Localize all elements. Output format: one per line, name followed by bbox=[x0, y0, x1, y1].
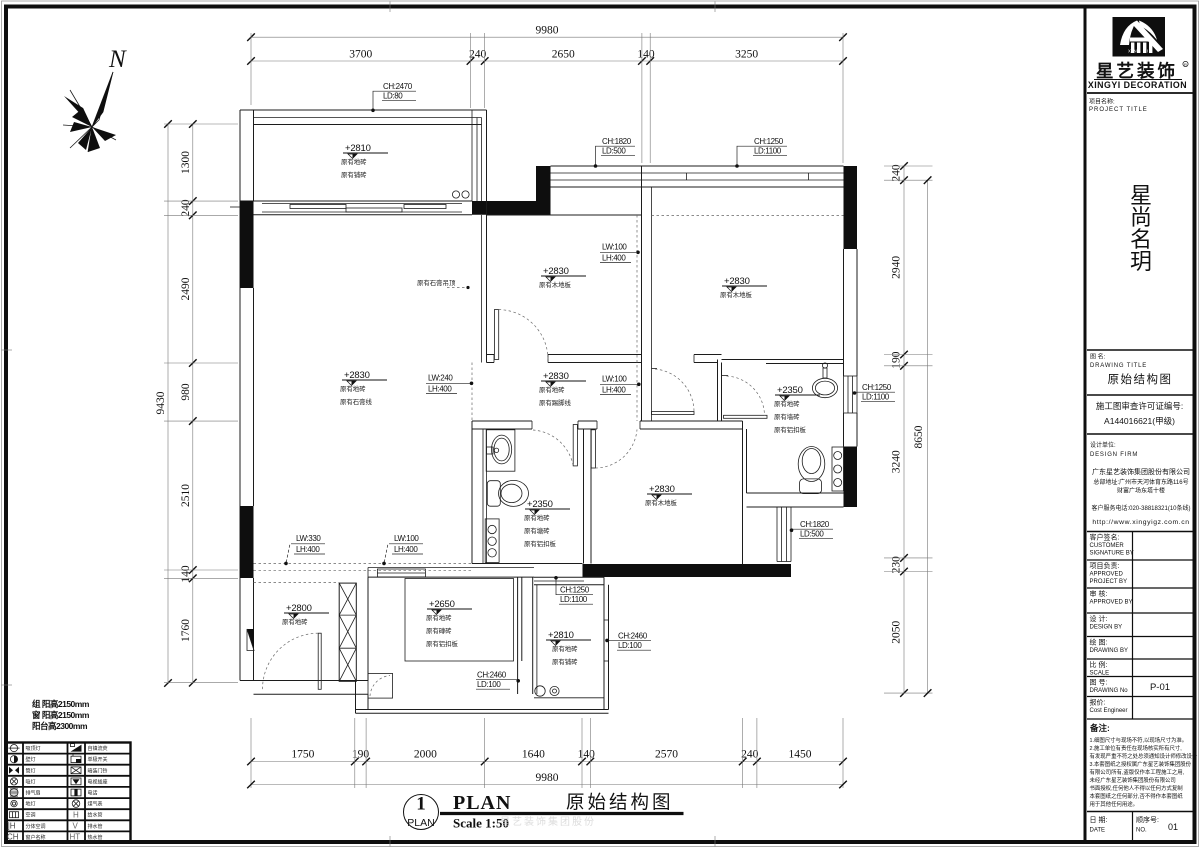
svg-text:原有地砖: 原有地砖 bbox=[552, 644, 578, 653]
svg-text:原有铺砖: 原有铺砖 bbox=[552, 657, 578, 666]
svg-text:原有磚砖: 原有磚砖 bbox=[426, 626, 452, 635]
svg-text:LH:400: LH:400 bbox=[296, 545, 320, 554]
svg-text:顺序号:: 顺序号: bbox=[1136, 815, 1159, 824]
svg-text:LD:100: LD:100 bbox=[477, 680, 501, 689]
svg-text:1640: 1640 bbox=[522, 749, 545, 761]
svg-text:给水管: 给水管 bbox=[88, 812, 103, 819]
svg-text:PROJECT TITLE: PROJECT TITLE bbox=[1089, 107, 1148, 113]
svg-text:书面授权,任何他人不得以任何方式复制: 书面授权,任何他人不得以任何方式复制 bbox=[1090, 784, 1183, 792]
svg-text:CH:1820: CH:1820 bbox=[800, 520, 830, 529]
svg-text:原有地砖: 原有地砖 bbox=[426, 613, 452, 622]
svg-text:CUSTOMER: CUSTOMER bbox=[1090, 543, 1125, 549]
svg-text:煤气表: 煤气表 bbox=[88, 801, 103, 808]
svg-text:原有地砖: 原有地砖 bbox=[282, 617, 308, 626]
svg-text:客户签名:: 客户签名: bbox=[1090, 533, 1120, 542]
svg-text:+2830: +2830 bbox=[344, 370, 370, 381]
svg-text:原有塘砖: 原有塘砖 bbox=[524, 526, 550, 535]
svg-text:V: V bbox=[73, 822, 79, 831]
svg-text:2050: 2050 bbox=[891, 621, 903, 644]
svg-text:LD:500: LD:500 bbox=[800, 530, 824, 539]
svg-text:CH:1820: CH:1820 bbox=[602, 137, 632, 146]
svg-text:XING YI: XING YI bbox=[1128, 49, 1149, 54]
svg-text:+2350: +2350 bbox=[527, 499, 553, 510]
svg-text:PLAN: PLAN bbox=[407, 817, 434, 829]
svg-text:原有铝扣板: 原有铝扣板 bbox=[774, 425, 807, 434]
svg-text:P-01: P-01 bbox=[1150, 682, 1170, 693]
svg-text:项目名称:: 项目名称: bbox=[1089, 98, 1115, 106]
svg-text:+2830: +2830 bbox=[543, 371, 569, 382]
svg-text:1300: 1300 bbox=[180, 151, 192, 174]
svg-text:190: 190 bbox=[891, 351, 903, 369]
svg-text:分体空调: 分体空调 bbox=[26, 823, 46, 830]
svg-text:+2650: +2650 bbox=[429, 599, 455, 610]
svg-text:原有木地板: 原有木地板 bbox=[645, 498, 678, 507]
svg-text:原有地砖: 原有地砖 bbox=[539, 385, 565, 394]
svg-text:9980: 9980 bbox=[536, 25, 559, 37]
svg-text:240: 240 bbox=[469, 49, 487, 61]
svg-text:星艺装饰: 星艺装饰 bbox=[1096, 61, 1178, 81]
svg-text:原始结构图: 原始结构图 bbox=[566, 792, 674, 813]
svg-text:本套图纸之任何部分,否不得作本套图纸: 本套图纸之任何部分,否不得作本套图纸 bbox=[1090, 792, 1184, 800]
svg-text:单极开关: 单极开关 bbox=[88, 756, 108, 763]
svg-text:LD:1100: LD:1100 bbox=[754, 147, 782, 156]
svg-text:DESIGN BY: DESIGN BY bbox=[1090, 625, 1123, 631]
svg-text:9430: 9430 bbox=[155, 391, 167, 414]
svg-text:原有地砖: 原有地砖 bbox=[524, 513, 550, 522]
svg-text:电视插座: 电视插座 bbox=[88, 778, 108, 785]
svg-text:240: 240 bbox=[891, 164, 903, 182]
svg-text:1450: 1450 bbox=[789, 749, 812, 761]
svg-text:地灯: 地灯 bbox=[26, 801, 36, 808]
svg-text:窗 阳高2150mm: 窗 阳高2150mm bbox=[32, 710, 90, 720]
svg-text:DRAWING BY: DRAWING BY bbox=[1090, 648, 1128, 654]
svg-text:有限公司所有,盗版仅作本工程施工之用,: 有限公司所有,盗版仅作本工程施工之用, bbox=[1090, 768, 1185, 776]
svg-text:有发现严重不符之处总须通知设计师修改设计: 有发现严重不符之处总须通知设计师修改设计 bbox=[1090, 752, 1198, 760]
svg-text:LW:100: LW:100 bbox=[394, 534, 419, 543]
svg-text:+2800: +2800 bbox=[286, 603, 312, 614]
svg-text:CH:2470: CH:2470 bbox=[383, 82, 413, 91]
svg-text:2940: 2940 bbox=[891, 256, 903, 279]
svg-text:Cost Engineer: Cost Engineer bbox=[1090, 708, 1128, 714]
svg-text:3250: 3250 bbox=[735, 49, 758, 61]
svg-text:H: H bbox=[73, 811, 79, 820]
svg-text:3700: 3700 bbox=[349, 49, 372, 61]
svg-text:原有铺砖: 原有铺砖 bbox=[341, 170, 367, 179]
svg-text:CH:2460: CH:2460 bbox=[477, 671, 507, 680]
svg-text:LH:400: LH:400 bbox=[602, 386, 626, 395]
svg-text:LD:100: LD:100 bbox=[618, 641, 642, 650]
svg-text:排水管: 排水管 bbox=[88, 823, 103, 830]
svg-text:广东星艺装饰集团股份有限公司: 广东星艺装饰集团股份有限公司 bbox=[1092, 467, 1190, 476]
svg-text:DATE: DATE bbox=[1090, 828, 1106, 834]
svg-text:3240: 3240 bbox=[891, 450, 903, 473]
svg-text:]H: ]H bbox=[8, 822, 16, 831]
svg-text:图 号:: 图 号: bbox=[1090, 679, 1108, 687]
svg-text:+2350: +2350 bbox=[777, 385, 803, 396]
svg-text:吸顶灯: 吸顶灯 bbox=[26, 745, 41, 752]
svg-text:暗装门铃: 暗装门铃 bbox=[88, 767, 108, 774]
svg-text:窗户名称: 窗户名称 bbox=[26, 834, 46, 841]
svg-text:LH:400: LH:400 bbox=[602, 254, 626, 263]
svg-text:140: 140 bbox=[578, 749, 596, 761]
svg-text:星艺装饰集团股份: 星艺装饰集团股份 bbox=[500, 815, 596, 828]
svg-text:原有地砖: 原有地砖 bbox=[341, 157, 367, 166]
svg-text:2.施工单位有责任在现场核实所有尺寸,: 2.施工单位有责任在现场核实所有尺寸, bbox=[1090, 744, 1183, 752]
svg-text:原有石膏吊顶: 原有石膏吊顶 bbox=[417, 278, 456, 287]
svg-text:140: 140 bbox=[180, 565, 192, 583]
svg-text:原始结构图: 原始结构图 bbox=[1108, 372, 1173, 386]
svg-text:LH:400: LH:400 bbox=[394, 545, 418, 554]
svg-text:9980: 9980 bbox=[536, 772, 559, 784]
svg-text:原有墙砖: 原有墙砖 bbox=[774, 412, 800, 421]
svg-text:1: 1 bbox=[416, 794, 426, 815]
svg-text:壁灯: 壁灯 bbox=[26, 756, 36, 763]
svg-text:图 名:: 图 名: bbox=[1090, 353, 1106, 361]
svg-text:原有铝扣板: 原有铝扣板 bbox=[524, 539, 557, 548]
svg-text:http://www.xingyigz.com.cn: http://www.xingyigz.com.cn bbox=[1092, 519, 1189, 526]
svg-text:备注:: 备注: bbox=[1089, 723, 1110, 733]
svg-text:LD:80: LD:80 bbox=[383, 92, 403, 101]
svg-text:原有石膏线: 原有石膏线 bbox=[340, 397, 373, 406]
svg-text:财富广场东塔十楼: 财富广场东塔十楼 bbox=[1117, 487, 1165, 495]
svg-text:+2810: +2810 bbox=[345, 143, 371, 154]
svg-text:筒灯: 筒灯 bbox=[26, 767, 36, 774]
svg-text:+2830: +2830 bbox=[724, 276, 750, 287]
svg-text:自镇流荧: 自镇流荧 bbox=[88, 745, 108, 752]
svg-text:CH:1250: CH:1250 bbox=[754, 137, 784, 146]
svg-text:玥: 玥 bbox=[1130, 249, 1152, 274]
svg-text:审 核:: 审 核: bbox=[1090, 589, 1108, 598]
svg-text:A144016621(甲级): A144016621(甲级) bbox=[1104, 416, 1175, 426]
svg-text:设 计:: 设 计: bbox=[1090, 614, 1108, 623]
svg-text:吸灯: 吸灯 bbox=[26, 778, 36, 785]
svg-text:空调: 空调 bbox=[26, 812, 36, 819]
svg-text:日 期:: 日 期: bbox=[1090, 816, 1108, 824]
svg-text:组 阳高2150mm: 组 阳高2150mm bbox=[32, 699, 90, 709]
svg-text:SIGNATURE BY: SIGNATURE BY bbox=[1090, 551, 1134, 557]
svg-text:N: N bbox=[108, 46, 127, 73]
svg-text:980: 980 bbox=[180, 383, 192, 401]
svg-text:HT: HT bbox=[70, 833, 81, 842]
svg-text:2510: 2510 bbox=[180, 484, 192, 507]
svg-text:8650: 8650 bbox=[913, 425, 925, 448]
svg-text:阳台高2300mm: 阳台高2300mm bbox=[32, 721, 88, 731]
svg-text:绘 图:: 绘 图: bbox=[1090, 638, 1108, 647]
svg-text:电话: 电话 bbox=[88, 790, 98, 797]
svg-text:项目负责:: 项目负责: bbox=[1090, 561, 1120, 570]
svg-text:NO.: NO. bbox=[1136, 828, 1147, 834]
svg-text:LH:400: LH:400 bbox=[428, 385, 452, 394]
svg-text:DRAWING No: DRAWING No bbox=[1090, 688, 1129, 694]
svg-text:240: 240 bbox=[741, 749, 759, 761]
svg-text:原有木地板: 原有木地板 bbox=[720, 290, 753, 299]
svg-text:LW:100: LW:100 bbox=[602, 243, 627, 252]
svg-text:DRAWING TITLE: DRAWING TITLE bbox=[1090, 363, 1147, 369]
svg-text:2000: 2000 bbox=[414, 749, 437, 761]
svg-text:140: 140 bbox=[637, 49, 655, 61]
svg-text:2490: 2490 bbox=[180, 277, 192, 300]
svg-text:用于其他任何用途。: 用于其他任何用途。 bbox=[1090, 800, 1139, 808]
svg-text:240: 240 bbox=[180, 199, 192, 217]
svg-text:R: R bbox=[1184, 62, 1187, 67]
svg-text:01: 01 bbox=[1168, 822, 1178, 832]
svg-text:未经广东星艺装饰集团股份有限公司: 未经广东星艺装饰集团股份有限公司 bbox=[1090, 776, 1176, 784]
svg-text:CH: CH bbox=[7, 833, 19, 842]
svg-text:APPROVED BY: APPROVED BY bbox=[1090, 600, 1133, 606]
svg-text:原有铝扣板: 原有铝扣板 bbox=[426, 639, 459, 648]
svg-text:CH:2460: CH:2460 bbox=[618, 632, 648, 641]
svg-text:LW:240: LW:240 bbox=[428, 374, 453, 383]
svg-text:LW:330: LW:330 bbox=[296, 534, 321, 543]
svg-text:1760: 1760 bbox=[180, 619, 192, 642]
svg-text:LD:1100: LD:1100 bbox=[560, 595, 588, 604]
svg-text:PROJECT BY: PROJECT BY bbox=[1090, 579, 1128, 585]
svg-text:2570: 2570 bbox=[655, 749, 678, 761]
svg-text:原有踢脚线: 原有踢脚线 bbox=[539, 398, 572, 407]
svg-text:CH:1250: CH:1250 bbox=[560, 586, 590, 595]
svg-text:230: 230 bbox=[891, 556, 903, 574]
svg-text:XINGYI DECORATION: XINGYI DECORATION bbox=[1088, 80, 1187, 90]
svg-text:排气扇: 排气扇 bbox=[26, 790, 41, 797]
svg-text:LW:100: LW:100 bbox=[602, 375, 627, 384]
svg-text:设计单位:: 设计单位: bbox=[1090, 441, 1116, 449]
svg-text:APPROVED: APPROVED bbox=[1090, 572, 1124, 578]
svg-text:LD:1100: LD:1100 bbox=[862, 393, 890, 402]
svg-text:LD:500: LD:500 bbox=[602, 147, 626, 156]
svg-text:热水管: 热水管 bbox=[88, 834, 103, 841]
svg-text:PLAN: PLAN bbox=[453, 792, 511, 814]
svg-text:3.本套图纸之授权属广东星艺装饰集团股份: 3.本套图纸之授权属广东星艺装饰集团股份 bbox=[1090, 760, 1192, 768]
svg-text:DESIGN FIRM: DESIGN FIRM bbox=[1090, 452, 1138, 458]
svg-text:SCALE: SCALE bbox=[1090, 671, 1110, 677]
svg-text:1.细图尺寸与现场不符,以现场尺寸为准。: 1.细图尺寸与现场不符,以现场尺寸为准。 bbox=[1090, 736, 1188, 744]
svg-text:原有地砖: 原有地砖 bbox=[340, 384, 366, 393]
svg-text:总部地址:广州市天河体育东路116号: 总部地址:广州市天河体育东路116号 bbox=[1093, 478, 1188, 486]
svg-text:客户服务电话:020-38818321(10条线): 客户服务电话:020-38818321(10条线) bbox=[1091, 504, 1190, 512]
svg-text:+2810: +2810 bbox=[548, 630, 574, 641]
svg-text:施工图审查许可证编号:: 施工图审查许可证编号: bbox=[1096, 401, 1183, 411]
svg-text:1750: 1750 bbox=[291, 749, 314, 761]
svg-text:+2830: +2830 bbox=[543, 266, 569, 277]
svg-text:比 例:: 比 例: bbox=[1090, 660, 1108, 669]
svg-text:原有木地板: 原有木地板 bbox=[539, 280, 572, 289]
svg-text:报价:: 报价: bbox=[1090, 698, 1106, 707]
svg-text:原有地砖: 原有地砖 bbox=[774, 399, 800, 408]
svg-text:2650: 2650 bbox=[552, 49, 575, 61]
svg-text:CH:1250: CH:1250 bbox=[862, 383, 892, 392]
svg-text:+2830: +2830 bbox=[649, 484, 675, 495]
